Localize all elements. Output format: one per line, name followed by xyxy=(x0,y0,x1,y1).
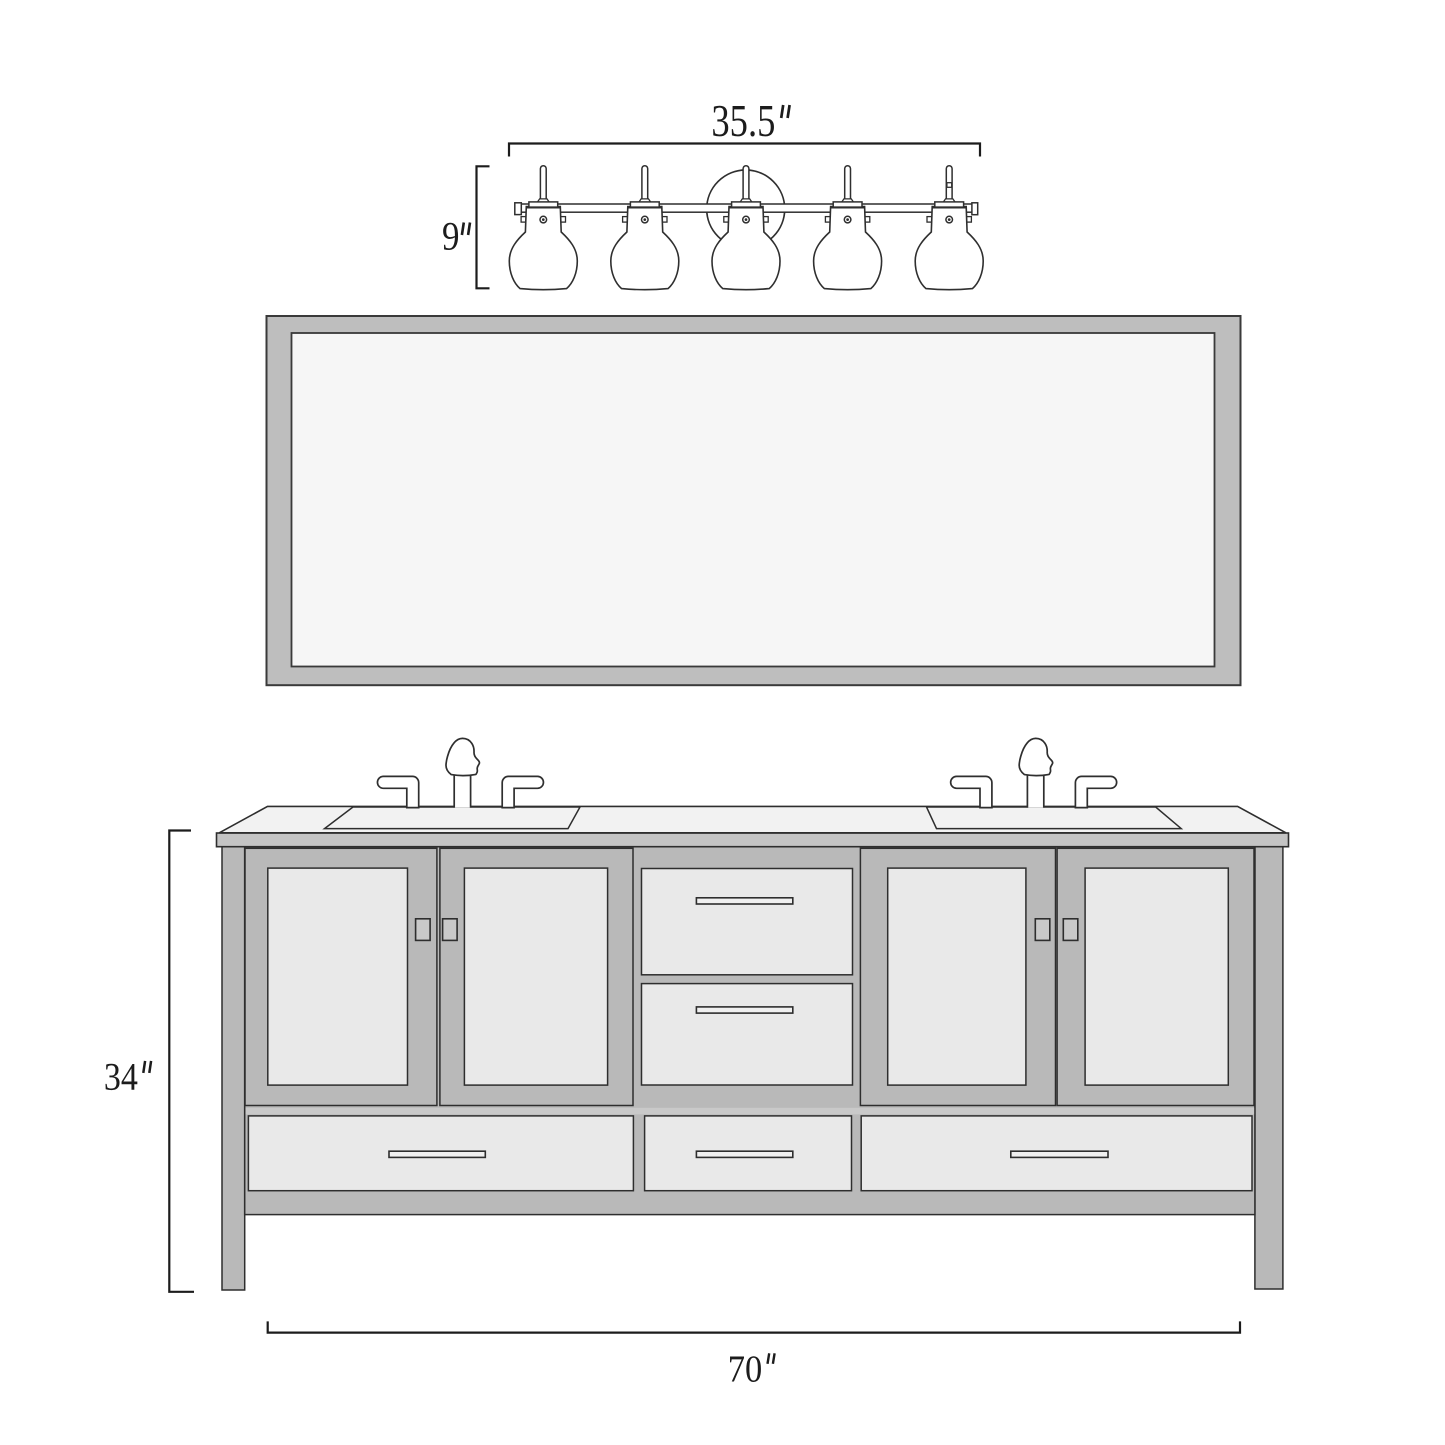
svg-text:70: 70 xyxy=(728,1350,763,1391)
svg-text:34: 34 xyxy=(104,1057,138,1099)
svg-text:9: 9 xyxy=(442,214,460,259)
svg-text:35.5: 35.5 xyxy=(711,95,775,146)
